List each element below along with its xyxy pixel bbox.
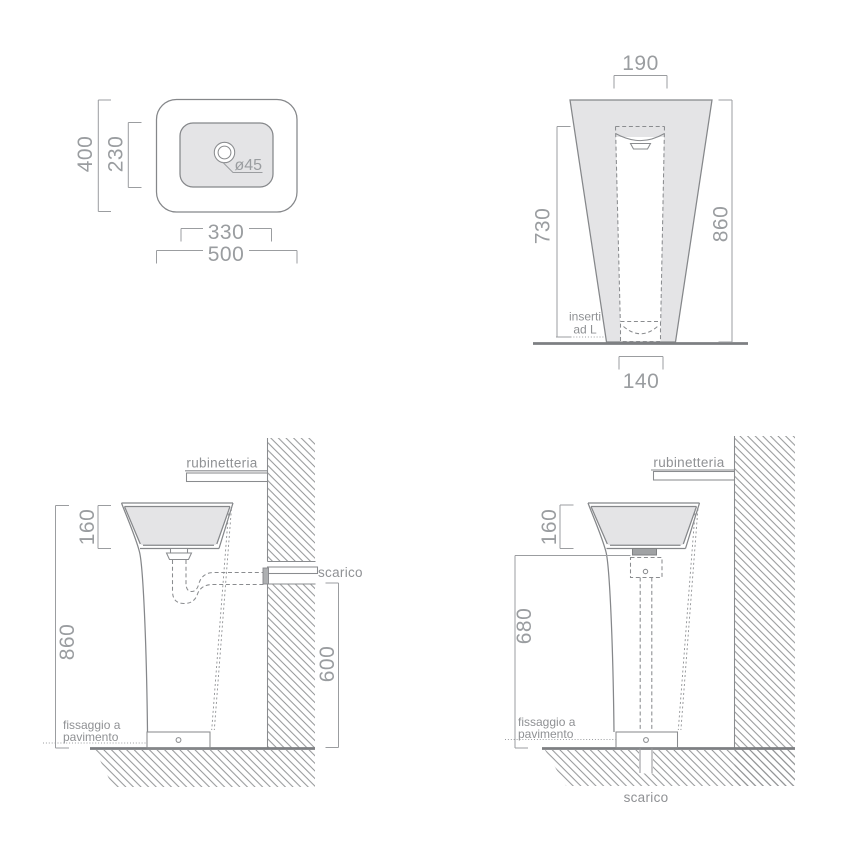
dim-860-label: 860 <box>56 624 79 661</box>
wall-hatch <box>735 436 796 786</box>
dim-680-label: 680 <box>513 608 536 645</box>
dim-160-label: 160 <box>76 509 99 546</box>
drain-fitting <box>633 549 657 556</box>
dim-140-label: 140 <box>623 370 660 393</box>
dim-860-label: 860 <box>710 206 733 243</box>
hidden-drain-pipe <box>640 578 652 732</box>
faucet-spout <box>187 473 268 482</box>
dim-230-label: 230 <box>105 136 128 173</box>
fixing-screw <box>176 738 181 743</box>
tap-label: rubinetteria <box>186 456 257 471</box>
drain-label: scarico <box>624 790 669 805</box>
siphon-box <box>631 558 663 578</box>
side-view-wall-drain: rubinetteria 160 860 scarico 600 fissagg… <box>43 438 363 787</box>
drain-hole-inner <box>218 146 231 159</box>
dim-600-label: 600 <box>316 646 339 683</box>
floor-hatch <box>545 750 795 786</box>
dim-500-label: 500 <box>208 243 245 266</box>
plan-view: ø45 400 230 330 500 <box>74 100 297 267</box>
drain-label: scarico <box>318 565 363 580</box>
faucet-spout <box>654 472 735 481</box>
wall-drain-connector <box>263 568 269 584</box>
tap-label: rubinetteria <box>653 455 724 470</box>
dim-190-label: 190 <box>622 52 659 75</box>
wall-hatch-upper <box>268 438 316 562</box>
fixing-screw <box>644 738 649 743</box>
siphon-screw <box>643 569 647 573</box>
washbasin-dimension-drawing: ø45 400 230 330 500 190 730 860 140 <box>0 0 861 852</box>
dim-730-line <box>557 127 571 338</box>
wall-hatch-lower <box>268 584 316 748</box>
dim-400-label: 400 <box>74 136 97 173</box>
drain-diameter-label: ø45 <box>235 157 263 174</box>
drain-tailpiece <box>171 549 188 554</box>
insert-label-line1: inserti <box>569 310 601 324</box>
side-view-floor-drain: rubinetteria 160 680 fissaggio a pavimen… <box>505 436 795 805</box>
floor-hatch <box>95 750 315 787</box>
dim-330-label: 330 <box>208 221 245 244</box>
wall-strip-above-drain <box>268 567 318 574</box>
front-view: 190 730 860 140 inserti ad L <box>532 52 749 393</box>
fixing-label-line2: pavimento <box>518 727 574 741</box>
dim-190-line <box>614 76 667 89</box>
dim-160-line <box>98 506 111 549</box>
basin-bowl-section <box>592 507 697 546</box>
dim-230-line <box>128 123 141 188</box>
basin-rim <box>122 503 234 507</box>
basin-rim <box>588 503 700 507</box>
technical-drawing-page: ø45 400 230 330 500 190 730 860 140 <box>0 0 861 852</box>
insert-label-line2: ad L <box>573 323 597 337</box>
dim-140-line <box>619 357 663 370</box>
floor-pipe-gap <box>639 749 653 774</box>
pedestal-cavity <box>616 137 664 342</box>
fixing-label-line2: pavimento <box>63 730 119 744</box>
dim-160-label: 160 <box>538 509 561 546</box>
dim-730-label: 730 <box>532 208 555 245</box>
drain-flange <box>167 553 192 560</box>
dim-160-line <box>560 505 574 549</box>
basin-bowl-section <box>125 507 230 546</box>
